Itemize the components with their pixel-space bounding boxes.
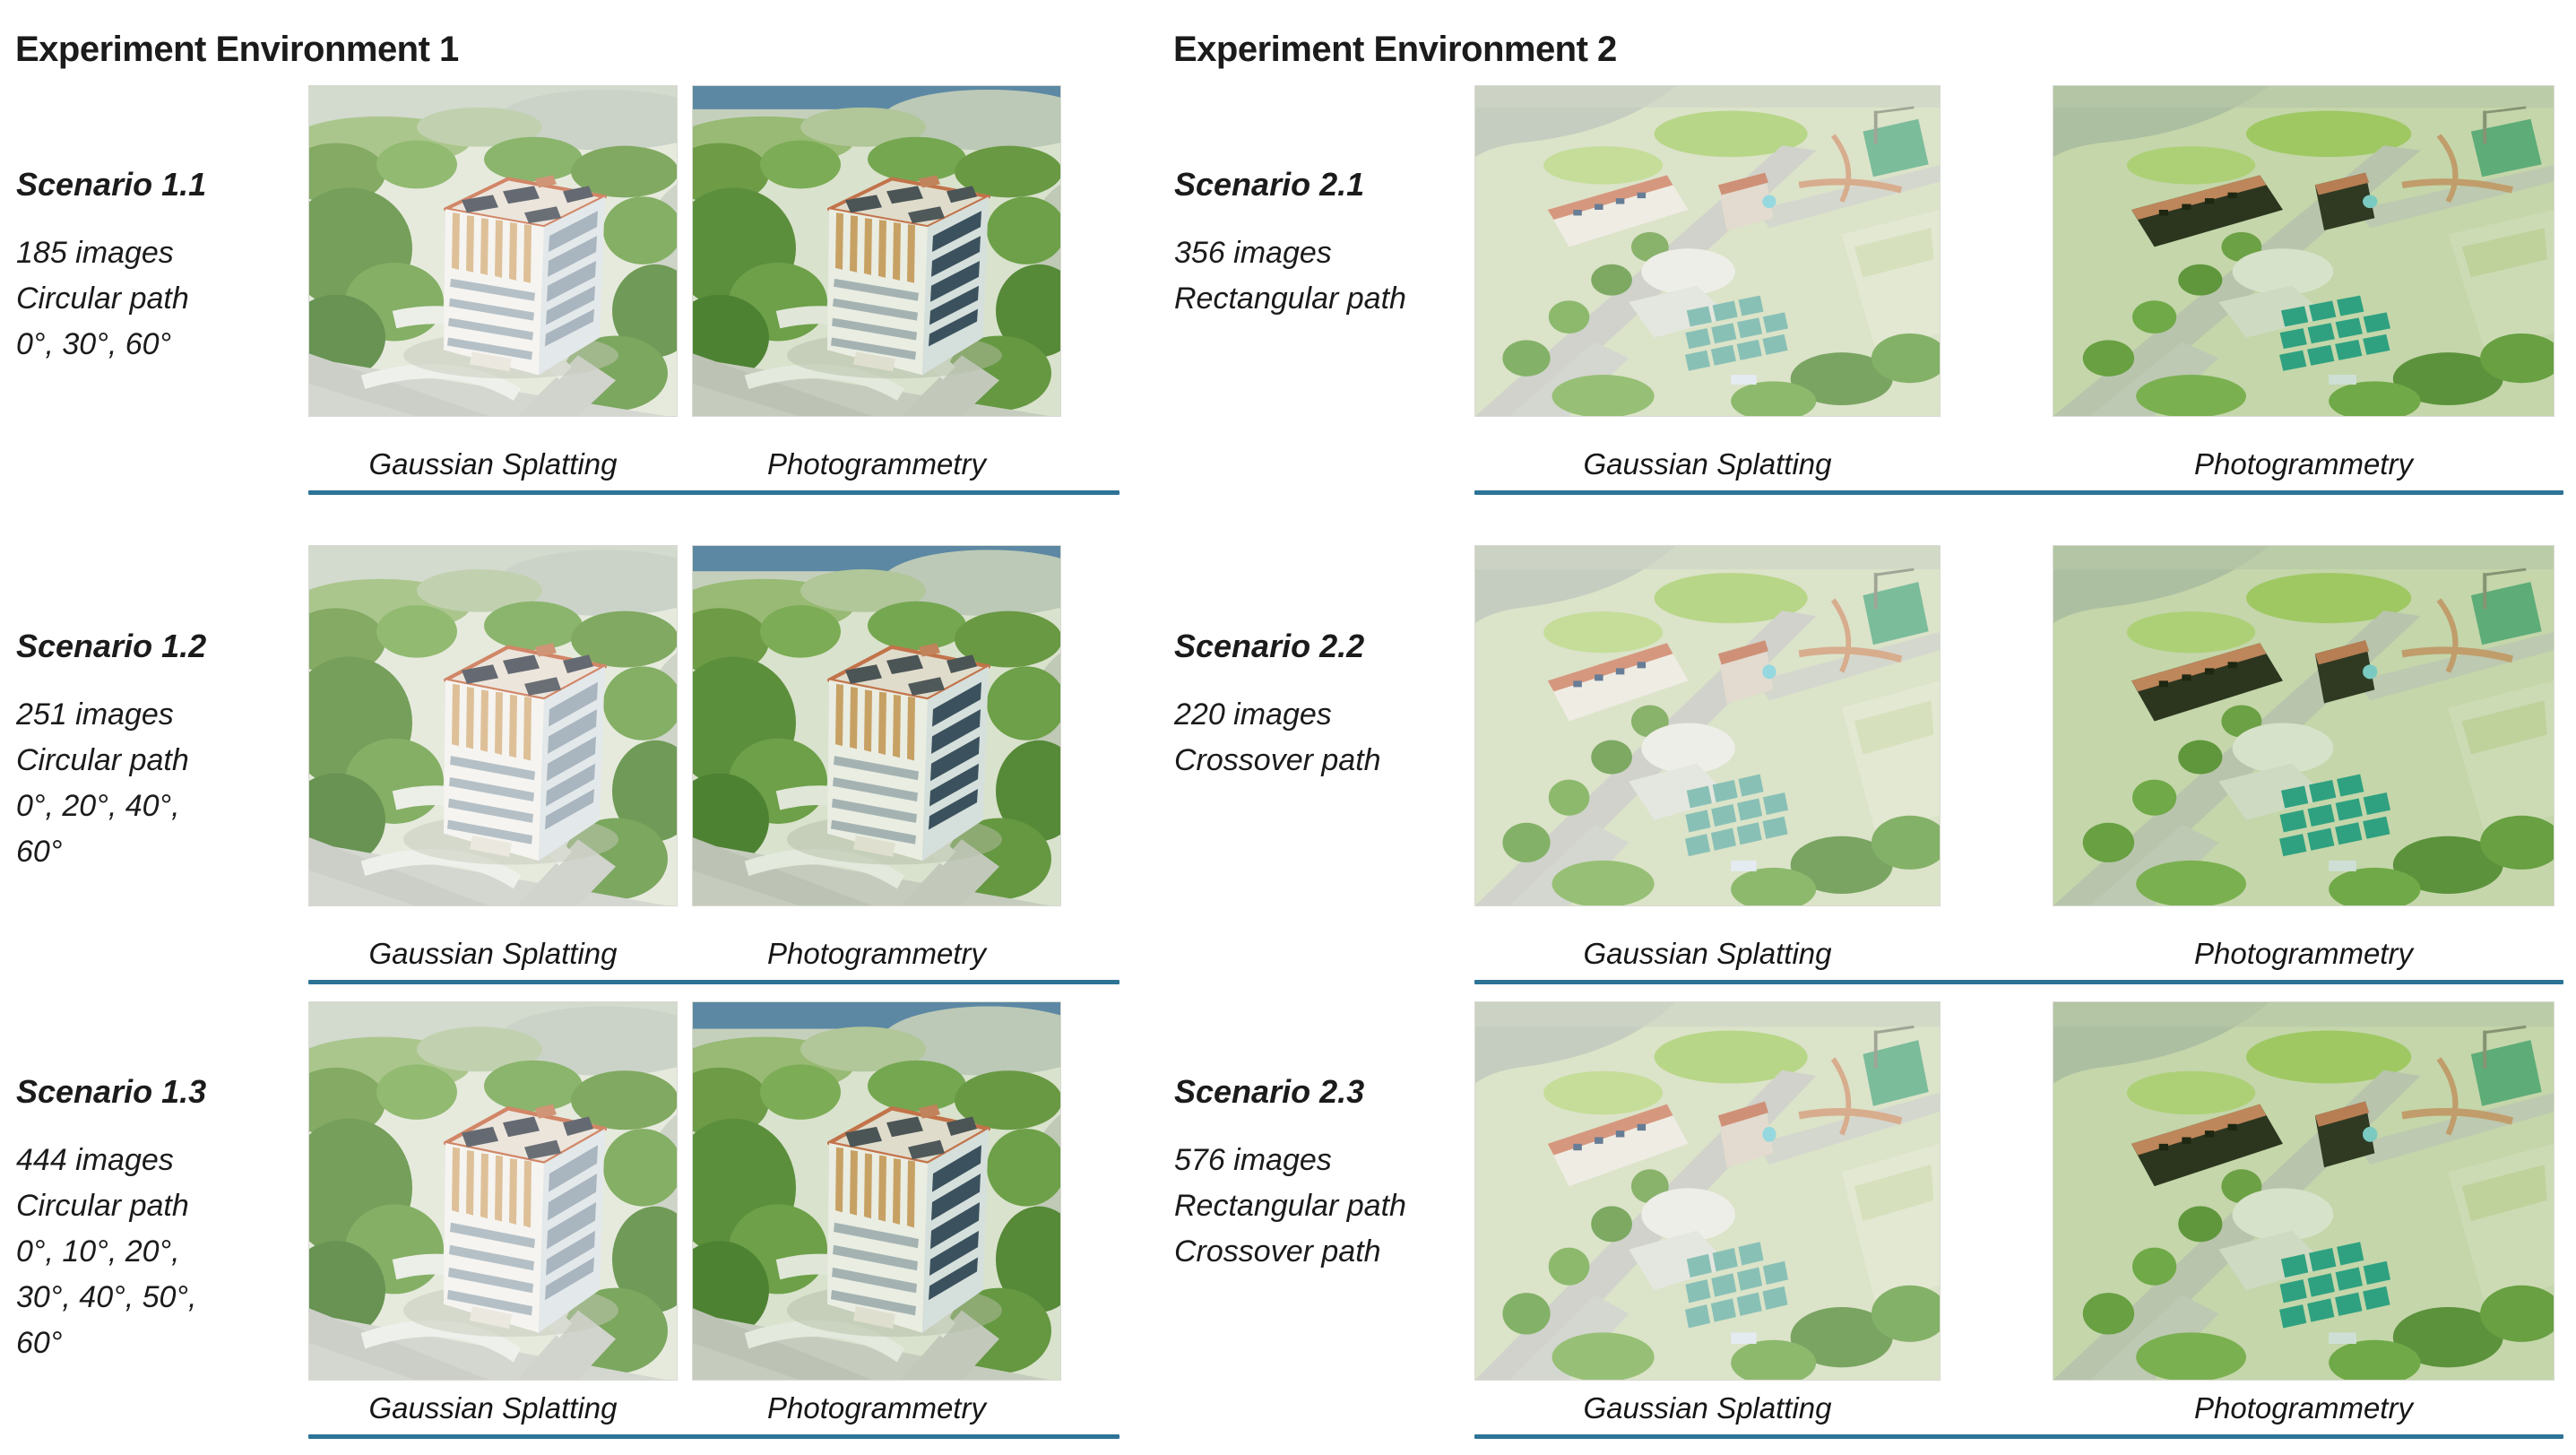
gaussian-splatting-image xyxy=(1474,85,1941,417)
photogrammetry-image xyxy=(2053,545,2554,906)
image-caption: Gaussian Splatting xyxy=(1474,1388,1941,1429)
divider-line xyxy=(1474,980,2563,984)
divider-line xyxy=(1474,1434,2563,1439)
divider-line xyxy=(308,980,1119,984)
scenario-detail: Crossover path xyxy=(1174,1229,1470,1275)
scenario-detail: 185 images xyxy=(16,230,231,276)
scenario-title: Scenario 1.3 xyxy=(16,1073,231,1111)
scenario-2-1-text: Scenario 2.1 356 images Rectangular path xyxy=(1174,166,1470,322)
photogrammetry-figure: Photogrammetry xyxy=(692,545,1061,974)
gaussian-splatting-figure: Gaussian Splatting xyxy=(308,545,678,974)
scenario-1-1-text: Scenario 1.1 185 images Circular path 0°… xyxy=(16,166,231,368)
image-caption: Gaussian Splatting xyxy=(308,444,678,485)
gaussian-splatting-figure: Gaussian Splatting xyxy=(308,1001,678,1429)
image-caption: Photogrammetry xyxy=(692,933,1061,974)
scenario-2-2-text: Scenario 2.2 220 images Crossover path xyxy=(1174,628,1470,784)
scenario-detail: Crossover path xyxy=(1174,738,1470,784)
scenario-detail: Circular path xyxy=(16,738,231,784)
scenario-detail: Circular path xyxy=(16,1183,231,1229)
scenario-detail: Rectangular path xyxy=(1174,1183,1470,1229)
divider-line xyxy=(308,490,1119,495)
photogrammetry-image xyxy=(692,545,1061,906)
image-caption: Photogrammetry xyxy=(692,444,1061,485)
photogrammetry-figure: Photogrammetry xyxy=(692,1001,1061,1429)
gaussian-splatting-image xyxy=(1474,545,1941,906)
scenario-detail: 0°, 10°, 20°, 30°, 40°, 50°, 60° xyxy=(16,1229,231,1366)
image-caption: Gaussian Splatting xyxy=(308,933,678,974)
image-caption: Gaussian Splatting xyxy=(308,1388,678,1429)
scenario-title: Scenario 2.1 xyxy=(1174,166,1470,204)
image-caption: Gaussian Splatting xyxy=(1474,444,1941,485)
gaussian-splatting-figure: Gaussian Splatting xyxy=(1474,1001,1941,1429)
scenario-1-2-figures: Gaussian Splatting Photogrammetry xyxy=(308,538,1119,984)
scenario-detail: 0°, 30°, 60° xyxy=(16,322,231,368)
photogrammetry-image xyxy=(2053,85,2554,417)
scenario-1-3-text: Scenario 1.3 444 images Circular path 0°… xyxy=(16,1073,231,1366)
scenario-1-3-figures: Gaussian Splatting Photogrammetry xyxy=(308,995,1119,1439)
photogrammetry-image xyxy=(2053,1001,2554,1381)
scenario-2-3-figures: Gaussian Splatting Photogrammetry xyxy=(1474,995,2563,1439)
scenario-detail: Rectangular path xyxy=(1174,276,1470,322)
image-caption: Photogrammetry xyxy=(2053,444,2554,485)
scenario-detail: 220 images xyxy=(1174,692,1470,738)
scenario-detail: 444 images xyxy=(16,1138,231,1183)
scenario-2-3-text: Scenario 2.3 576 images Rectangular path… xyxy=(1174,1073,1470,1275)
photogrammetry-figure: Photogrammetry xyxy=(2053,1001,2554,1429)
image-caption: Gaussian Splatting xyxy=(1474,933,1941,974)
photogrammetry-image xyxy=(692,85,1061,417)
gaussian-splatting-figure: Gaussian Splatting xyxy=(1474,545,1941,974)
gaussian-splatting-figure: Gaussian Splatting xyxy=(308,85,678,485)
image-caption: Photogrammetry xyxy=(2053,933,2554,974)
experiment-environment-1-section: Experiment Environment 1 Scenario 1.1 18… xyxy=(13,0,1165,1455)
scenario-1-2-text: Scenario 1.2 251 images Circular path 0°… xyxy=(16,628,231,875)
scenario-title: Scenario 1.1 xyxy=(16,166,231,204)
scenario-2-2-figures: Gaussian Splatting Photogrammetry xyxy=(1474,538,2563,984)
scenario-detail: Circular path xyxy=(16,276,231,322)
gaussian-splatting-figure: Gaussian Splatting xyxy=(1474,85,1941,485)
scenario-title: Scenario 2.2 xyxy=(1174,628,1470,665)
photogrammetry-figure: Photogrammetry xyxy=(2053,85,2554,485)
figure-canvas: Experiment Environment 1 Scenario 1.1 18… xyxy=(0,0,2576,1455)
gaussian-splatting-image xyxy=(308,1001,678,1381)
scenario-detail: 576 images xyxy=(1174,1138,1470,1183)
image-caption: Photogrammetry xyxy=(692,1388,1061,1429)
gaussian-splatting-image xyxy=(308,85,678,417)
photogrammetry-figure: Photogrammetry xyxy=(692,85,1061,485)
divider-line xyxy=(308,1434,1119,1439)
gaussian-splatting-image xyxy=(308,545,678,906)
photogrammetry-figure: Photogrammetry xyxy=(2053,545,2554,974)
scenario-2-1-figures: Gaussian Splatting Photogrammetry xyxy=(1474,49,2563,495)
experiment-environment-2-section: Experiment Environment 2 Scenario 2.1 35… xyxy=(1171,0,2576,1455)
scenario-1-1-figures: Gaussian Splatting Photogrammetry xyxy=(308,49,1119,495)
scenario-detail: 356 images xyxy=(1174,230,1470,276)
divider-line xyxy=(1474,490,2563,495)
scenario-detail: 0°, 20°, 40°, 60° xyxy=(16,784,231,875)
gaussian-splatting-image xyxy=(1474,1001,1941,1381)
scenario-detail: 251 images xyxy=(16,692,231,738)
scenario-title: Scenario 2.3 xyxy=(1174,1073,1470,1111)
image-caption: Photogrammetry xyxy=(2053,1388,2554,1429)
scenario-title: Scenario 1.2 xyxy=(16,628,231,665)
photogrammetry-image xyxy=(692,1001,1061,1381)
